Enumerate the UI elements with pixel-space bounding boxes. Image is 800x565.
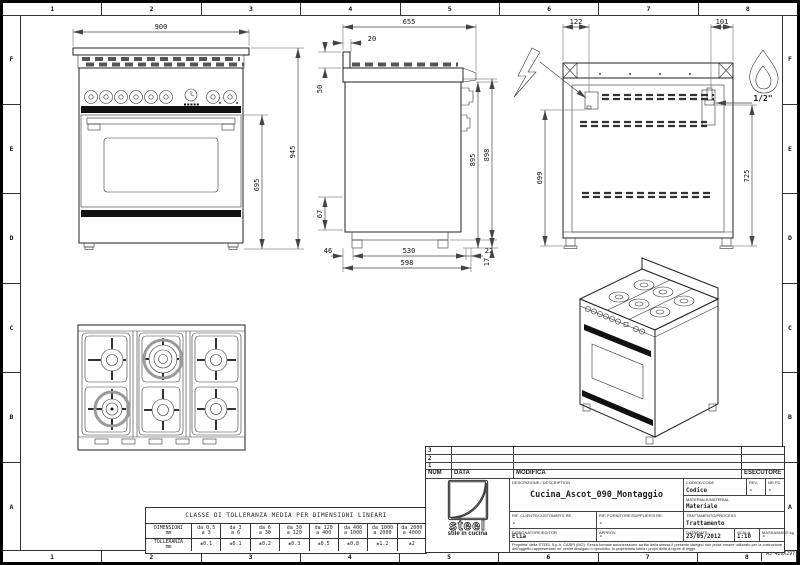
range-to: a 2000	[373, 531, 391, 537]
row-label: E	[3, 105, 20, 195]
side-view: 655 20 50 67 46 530 22 59	[316, 18, 498, 272]
rev-modifica-header: MODIFICA	[513, 469, 741, 478]
pieces-value: -	[768, 488, 772, 494]
drawing-description: Cucina_Ascot_090_Montaggio	[510, 490, 683, 500]
supplier-ref-label: RIF. FORNITORE/SUPPLIER'S RE.	[599, 513, 663, 518]
supplier-ref-value: -	[599, 521, 603, 527]
range-to: a 400	[316, 531, 331, 537]
title-block: 3 2 1 NUM DATA MODIFICA ESECUTORE steel …	[425, 446, 785, 553]
row-label: D	[783, 194, 797, 284]
dim-front-door-height: 695	[253, 179, 261, 192]
dim-side-backsplash-offset: 20	[368, 35, 376, 43]
dim-side-overall-height: 898	[483, 149, 491, 162]
dim-front-width: 900	[155, 23, 168, 31]
sheet-format-label: A3 420X297	[761, 552, 795, 561]
pieces-label: NR.PZ.	[768, 480, 781, 485]
range-to: a 120	[287, 531, 302, 537]
dim-back-gas-offset: 101	[716, 18, 729, 26]
dim-front-total-height: 945	[289, 146, 297, 159]
gas-thread-label: 1/2"	[753, 94, 772, 103]
range-to: a 30	[259, 531, 271, 537]
tolerance-cell: ±0.1	[191, 538, 220, 551]
sheet-edge-top	[0, 0, 800, 3]
knob-row	[85, 91, 237, 104]
dim-side-plinth: 67	[316, 210, 324, 218]
column-label: 8	[699, 3, 797, 15]
range-cell: da 1000a 2000	[367, 523, 396, 538]
tolerance-row-header: TOLLERANZA mm	[146, 538, 191, 551]
rev-value: -	[749, 488, 753, 494]
tolerance-cell: ±1.2	[367, 538, 396, 551]
back-view: 1/2" 122 101 699 725	[514, 18, 778, 249]
burners	[95, 340, 227, 426]
range-to: a 3	[202, 531, 211, 537]
dim-side-foot-height: 17	[483, 258, 491, 266]
column-label: 1	[3, 3, 102, 15]
dim-side-backsplash-height: 50	[316, 85, 324, 93]
isometric-view	[580, 258, 718, 444]
company-logo: steel stile in cucina	[426, 478, 509, 552]
range-cell: da 0.5a 3	[191, 523, 220, 538]
legal-notice: Proprieta' della STEEL S.p.A. CARPI (MO)…	[512, 543, 782, 551]
row-label: D	[3, 194, 20, 284]
border-rows-left: F E D C B A	[3, 15, 21, 551]
tolerance-cell: ±0.3	[279, 538, 308, 551]
tolerance-cell: ±0.8	[338, 538, 367, 551]
tolerance-cell: ±0.5	[309, 538, 338, 551]
column-label: 2	[102, 3, 201, 15]
dim-side-worktop-height: 895	[469, 154, 477, 167]
range-cell: da 3a 6	[220, 523, 249, 538]
column-label: 5	[401, 3, 500, 15]
row-label: A	[783, 463, 797, 552]
editor-value: Elia	[512, 534, 526, 540]
tolerance-table: CLASSE DI TOLLERANZA MEDIA PER DIMENSION…	[145, 507, 427, 554]
row-label: C	[3, 284, 20, 374]
rev-data-header: DATA	[451, 469, 513, 478]
drawing-sheet: 900 695 945 655	[0, 0, 800, 565]
column-label: 7	[599, 3, 698, 15]
dim-side-depth: 655	[403, 18, 416, 26]
material-label: MATERIALE/MATERIAL	[686, 497, 729, 502]
column-label: 3	[202, 3, 301, 15]
range-to: a 4000	[403, 531, 421, 537]
column-label: 6	[500, 3, 599, 15]
top-view	[78, 325, 245, 450]
row-label: E	[783, 105, 797, 195]
range-cell: da 6a 30	[250, 523, 279, 538]
row-label: A	[3, 463, 20, 552]
description-label: DESCRIZIONE / DESCRIPTION	[512, 480, 570, 485]
steel-logo-mark	[447, 479, 489, 521]
approval-value: -	[599, 534, 603, 540]
range-cell: da 2000a 4000	[397, 523, 426, 538]
lightning-icon	[514, 48, 540, 97]
dim-back-electric-height: 699	[536, 172, 544, 185]
range-to: a 1000	[344, 531, 362, 537]
tolerance-table-title: CLASSE DI TOLLERANZA MEDIA PER DIMENSION…	[146, 508, 426, 523]
rev-num-header: NUM	[426, 469, 451, 478]
logo-wordmark: steel	[449, 519, 486, 531]
column-label: 1	[3, 551, 102, 562]
customer-ref-label: RIF. CLIENTE/CUSTOMER'S RE.	[512, 513, 572, 518]
dim-side-base-depth: 598	[401, 259, 414, 267]
row-label: B	[783, 373, 797, 463]
treatment-value: Trattamento	[686, 521, 724, 527]
code-label: CODICE/CODE	[686, 480, 714, 485]
dim-side-rear-inset: 46	[324, 247, 332, 255]
dimension-row-header: DIMENSIONI mm	[146, 523, 191, 538]
flame-icon	[750, 50, 778, 93]
dim-side-foot-span: 530	[403, 247, 416, 255]
dim-back-electric-offset: 122	[570, 18, 583, 26]
tolerance-cell: ±2	[397, 538, 426, 551]
border-columns-top: 1 2 3 4 5 6 7 8	[3, 3, 797, 16]
front-view: 900 695 945	[73, 23, 304, 250]
esecutore-header: ESECUTORE	[741, 469, 784, 478]
customer-ref-value: -	[512, 521, 516, 527]
tolerance-cell: ±0.1	[220, 538, 249, 551]
treatment-label: TRATTAMENTO/PROCESS	[686, 513, 736, 518]
dimension-header-unit: mm	[166, 531, 172, 537]
row-label: B	[3, 373, 20, 463]
row-label: C	[783, 284, 797, 374]
logo-tagline: stile in cucina	[448, 531, 488, 537]
tolerance-header-unit: mm	[166, 545, 172, 551]
range-cell: da 120a 400	[309, 523, 338, 538]
range-cell: da 400a 1000	[338, 523, 367, 538]
row-label: F	[3, 15, 20, 105]
material-value: Materiale	[686, 504, 717, 510]
range-cell: da 30a 120	[279, 523, 308, 538]
tolerance-cell: ±0.2	[250, 538, 279, 551]
mass-label: MASSA/MASS kg	[762, 530, 794, 535]
code-value: Codice	[686, 488, 707, 494]
rev-label: REV.	[749, 480, 758, 485]
row-label: F	[783, 15, 797, 105]
range-to: a 6	[231, 531, 240, 537]
scale-value: 1:10	[737, 534, 751, 540]
sheet-edge-left	[0, 0, 3, 565]
dim-back-gas-height: 725	[743, 170, 751, 183]
date-value: 23/05/2012	[686, 534, 721, 540]
column-label: 4	[301, 3, 400, 15]
mass-value: -	[762, 534, 766, 540]
